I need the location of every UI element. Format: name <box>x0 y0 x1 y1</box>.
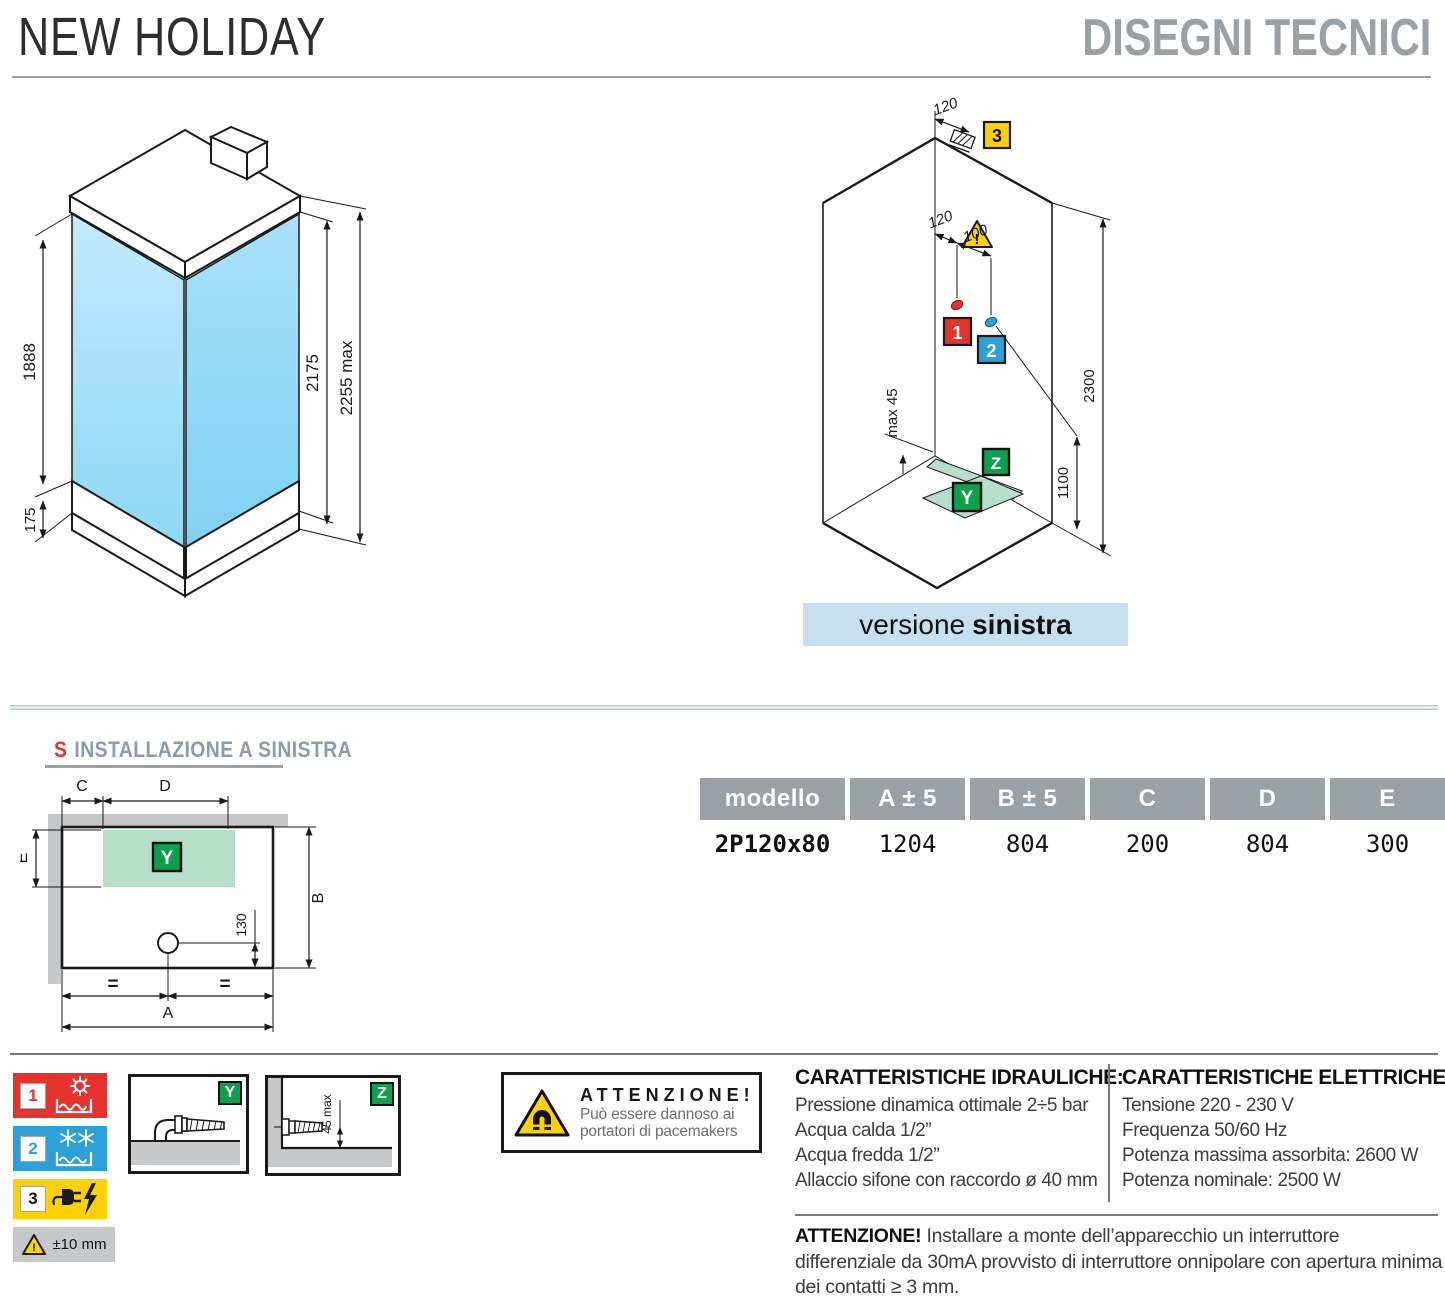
footer-divider <box>10 1053 1438 1055</box>
marker-y-label: Y <box>961 488 974 509</box>
dim-label-d: D <box>159 778 171 795</box>
hot-water-icon <box>48 1076 102 1116</box>
page-subtitle: DISEGNI TECNICI <box>1082 8 1431 68</box>
dim-label-max45: max 45 <box>884 388 901 437</box>
magnet-warning-icon <box>513 1087 571 1139</box>
plan-heading: SINSTALLAZIONE A SINISTRA <box>54 737 352 763</box>
marker-2-label: 2 <box>986 341 996 361</box>
cold-water-icon <box>48 1129 102 1169</box>
legend-tolerance: ! ±10 mm <box>13 1227 115 1262</box>
hydraulic-line: Acqua calda 1/2” <box>795 1118 1100 1143</box>
version-banner-side: sinistra <box>972 609 1072 641</box>
drain-hole <box>158 933 178 953</box>
wall-top <box>48 814 288 827</box>
dim-label-1100: 1100 <box>1055 467 1072 499</box>
floor-step-detail <box>885 434 933 474</box>
hydraulic-line: Acqua fredda 1/2” <box>795 1143 1100 1168</box>
electric-line: Potenza nominale: 2500 W <box>1122 1168 1445 1193</box>
hydraulic-line: Allaccio sifone con raccordo ø 40 mm <box>795 1168 1100 1193</box>
inlet-detail-box: 45 max Z <box>265 1075 401 1176</box>
technical-sheet-page: { "header": { "title": "NEW HOLIDAY", "s… <box>0 0 1445 1302</box>
dim-label-1888: 1888 <box>20 343 39 381</box>
hydraulic-line: Pressione dinamica ottimale 2÷5 bar <box>795 1093 1100 1118</box>
cabin-wireframe <box>823 138 1052 588</box>
table-header-modello: modello <box>700 778 845 820</box>
hot-water-point <box>950 298 965 311</box>
tolerance-value: ±10 mm <box>52 1236 106 1253</box>
connection-drop-lines <box>957 245 1077 436</box>
table-cell-a: 1204 <box>850 825 965 863</box>
plan-heading-text: INSTALLAZIONE A SINISTRA <box>74 737 352 762</box>
dim-label-2300: 2300 <box>1081 369 1098 402</box>
tolerance-warning-mark: ! <box>33 1242 37 1254</box>
dim-label-c: C <box>76 778 88 795</box>
model-spec-table: modello A ± 5 B ± 5 C D E 2P120x80 1204 … <box>700 778 1445 863</box>
section-divider <box>10 705 1438 710</box>
legend-hot-number: 1 <box>20 1083 46 1109</box>
table-cell-c: 200 <box>1090 825 1205 863</box>
electric-characteristics: CARATTERISTICHE ELETTRICHE: Tensione 220… <box>1122 1066 1445 1193</box>
marker-y-label: Y <box>161 848 174 869</box>
plan-drawing: Y C D E B 130 = = A <box>20 770 340 1040</box>
attention-divider <box>795 1214 1438 1216</box>
electric-title: CARATTERISTICHE ELETTRICHE: <box>1122 1066 1445 1090</box>
legend-electrical: 3 <box>13 1179 107 1219</box>
tolerance-warning-icon: ! <box>21 1233 47 1256</box>
wall-left <box>48 814 61 984</box>
plan-heading-letter: S <box>54 737 67 762</box>
equal-mark-left: = <box>107 974 118 995</box>
cabin-body <box>70 127 300 596</box>
pacemaker-warning-line2: portatori di pacemakers <box>580 1123 755 1140</box>
dim-label-120-top: 120 <box>931 94 961 119</box>
dim-label-a: A <box>163 1005 174 1022</box>
cabin-isometric-drawing: 1888 175 2175 2255 max <box>15 95 435 620</box>
drain-detail-tag: Y <box>218 1081 242 1105</box>
version-banner-text: versione <box>859 609 965 641</box>
hydraulic-characteristics: CARATTERISTICHE IDRAULICHE: Pressione di… <box>795 1066 1100 1193</box>
dim-120-top-line <box>935 119 969 132</box>
installation-isometric-drawing: Z Y 120 3 ! 120 100 1 2 max 45 1100 <box>785 85 1130 605</box>
pacemaker-warning-box: ATTENZIONE! Può essere dannoso ai portat… <box>501 1072 762 1153</box>
electric-line: Potenza massima assorbita: 2600 W <box>1122 1143 1445 1168</box>
pacemaker-warning-line1: Può essere dannoso ai <box>580 1106 755 1123</box>
legend-cold-number: 2 <box>20 1136 46 1162</box>
table-header-a: A ± 5 <box>850 778 965 820</box>
dim-label-120: 120 <box>926 207 956 232</box>
dim-label-2175: 2175 <box>303 354 322 392</box>
dim-label-e: E <box>20 853 31 864</box>
table-cell-model: 2P120x80 <box>700 825 845 863</box>
table-header-e: E <box>1330 778 1445 820</box>
hydraulic-title: CARATTERISTICHE IDRAULICHE: <box>795 1066 1100 1090</box>
marker-1-label: 1 <box>952 323 962 343</box>
table-header-b: B ± 5 <box>970 778 1085 820</box>
dim-label-2255-max: 2255 max <box>337 340 356 415</box>
inlet-dim-label: 45 max <box>320 1094 334 1133</box>
electric-line: Tensione 220 - 230 V <box>1122 1093 1445 1118</box>
legend-cold-water: 2 <box>13 1126 107 1171</box>
marker-3-label: 3 <box>992 126 1002 146</box>
table-header-d: D <box>1210 778 1325 820</box>
electric-line: Frequenza 50/60 Hz <box>1122 1118 1445 1143</box>
electrical-plug-icon <box>50 1181 102 1217</box>
plan-heading-underline <box>45 765 283 768</box>
equal-mark-right: = <box>219 974 230 995</box>
table-cell-b: 804 <box>970 825 1085 863</box>
installation-warning: ATTENZIONE! Installare a monte dell’appa… <box>795 1224 1443 1301</box>
legend-electrical-number: 3 <box>20 1186 46 1212</box>
version-banner: versione sinistra <box>803 603 1128 646</box>
table-header-c: C <box>1090 778 1205 820</box>
legend-hot-water: 1 <box>13 1073 107 1118</box>
pacemaker-warning-title: ATTENZIONE! <box>580 1085 755 1106</box>
inlet-detail-tag: Z <box>370 1082 394 1106</box>
installation-warning-title: ATTENZIONE! <box>795 1225 921 1247</box>
dim-label-130: 130 <box>233 913 249 937</box>
marker-z-label: Z <box>991 454 1001 473</box>
dim-label-b: B <box>310 893 327 904</box>
drain-detail-box: Y <box>128 1074 249 1174</box>
table-cell-e: 300 <box>1330 825 1445 863</box>
characteristics-divider <box>1108 1064 1110 1202</box>
dim-label-175: 175 <box>22 507 39 532</box>
table-cell-d: 804 <box>1210 825 1325 863</box>
page-title: NEW HOLIDAY <box>18 6 326 68</box>
header-divider <box>12 76 1431 78</box>
